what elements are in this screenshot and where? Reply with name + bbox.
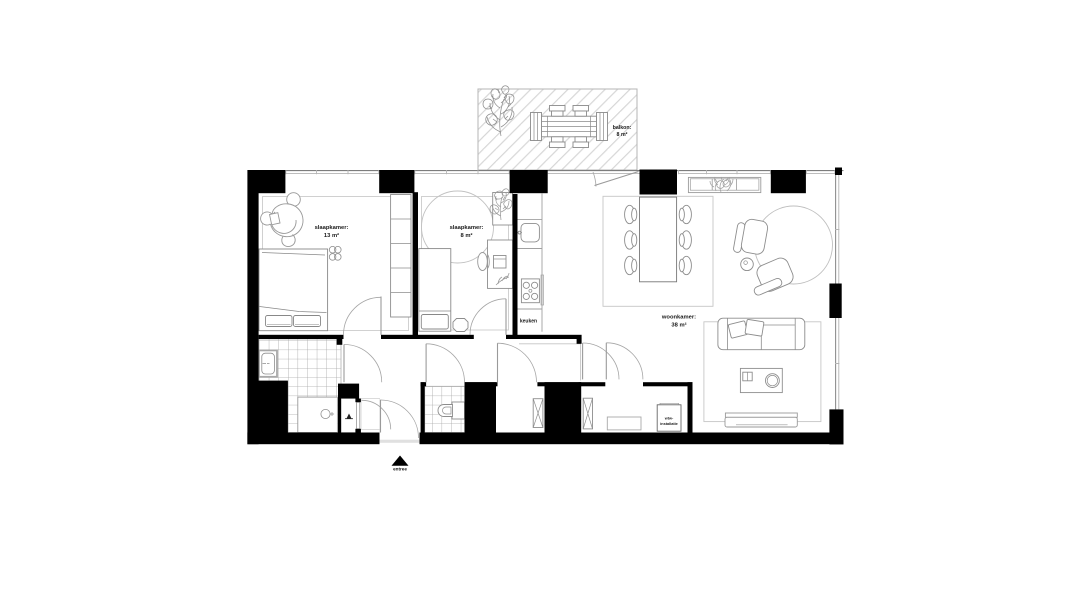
svg-text:slaapkamer:: slaapkamer: <box>315 225 349 231</box>
svg-text:balkon:: balkon: <box>613 125 632 131</box>
svg-text:8 m²: 8 m² <box>617 132 628 138</box>
svg-text:entree: entree <box>393 467 407 472</box>
svg-text:slaapkamer:: slaapkamer: <box>450 225 484 231</box>
svg-text:woonkamer:: woonkamer: <box>661 315 696 321</box>
svg-text:installatie: installatie <box>660 422 678 426</box>
svg-text:38 m²: 38 m² <box>671 322 686 329</box>
svg-text:13 m²: 13 m² <box>324 232 339 239</box>
svg-text:keuken: keuken <box>520 319 537 325</box>
svg-text:wtw-: wtw- <box>664 417 674 421</box>
svg-text:8 m²: 8 m² <box>461 232 473 239</box>
